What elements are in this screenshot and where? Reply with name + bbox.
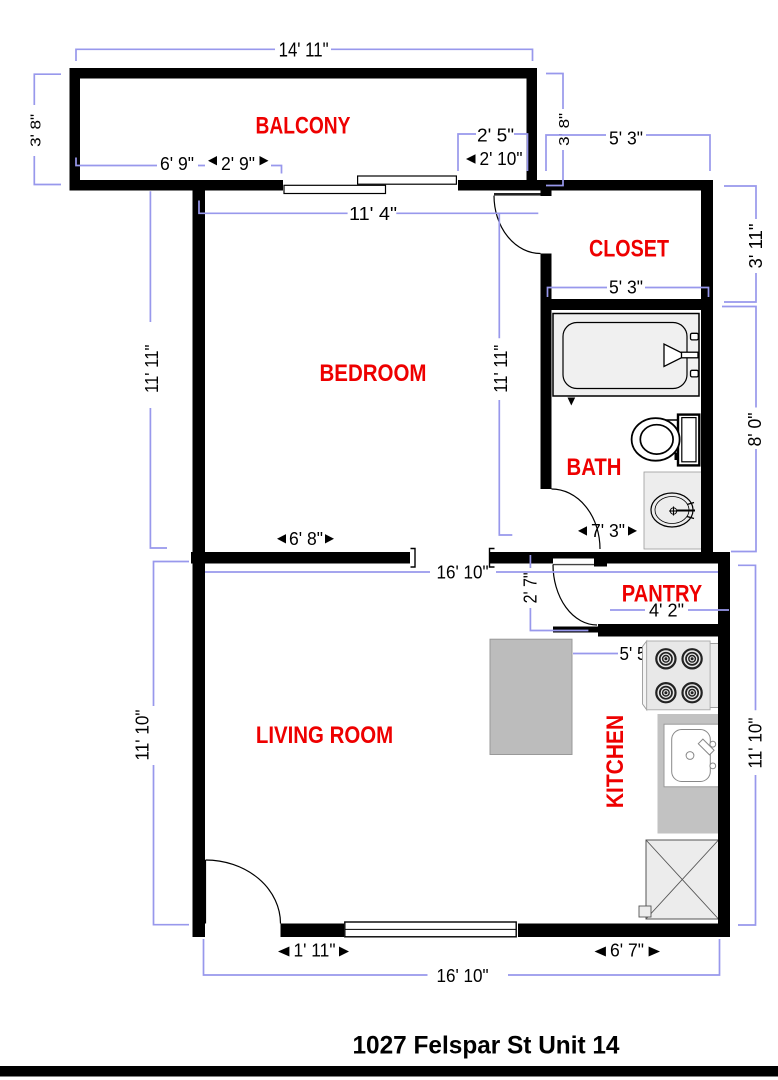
svg-text:6' 7": 6' 7" <box>610 941 644 961</box>
svg-text:11' 11": 11' 11" <box>142 345 162 394</box>
svg-text:11' 4": 11' 4" <box>349 204 397 224</box>
svg-text:3' 11": 3' 11" <box>746 224 766 269</box>
svg-text:11' 10": 11' 10" <box>132 710 152 761</box>
svg-text:6' 9": 6' 9" <box>160 154 194 174</box>
svg-text:5' 3": 5' 3" <box>609 278 643 298</box>
svg-text:3' 8": 3' 8" <box>27 114 44 147</box>
svg-text:3' 8": 3' 8" <box>556 113 573 146</box>
svg-text:BALCONY: BALCONY <box>256 113 351 140</box>
svg-text:11' 11": 11' 11" <box>491 345 511 393</box>
svg-text:BEDROOM: BEDROOM <box>320 360 427 387</box>
svg-text:5' 3": 5' 3" <box>609 129 643 149</box>
svg-text:16' 10": 16' 10" <box>437 563 489 583</box>
svg-text:2' 7": 2' 7" <box>520 572 540 603</box>
svg-text:2' 10": 2' 10" <box>480 149 523 169</box>
svg-text:CLOSET: CLOSET <box>589 236 669 263</box>
svg-text:14' 11": 14' 11" <box>279 40 329 62</box>
svg-text:KITCHEN: KITCHEN <box>602 715 629 808</box>
svg-text:7' 3": 7' 3" <box>591 521 625 541</box>
svg-text:BATH: BATH <box>567 454 622 481</box>
svg-text:6' 8": 6' 8" <box>289 529 323 549</box>
svg-text:1027 Felspar St Unit 14: 1027 Felspar St Unit 14 <box>353 1032 620 1060</box>
svg-text:2' 9": 2' 9" <box>221 154 255 174</box>
svg-text:8' 0": 8' 0" <box>745 413 765 447</box>
svg-text:11' 10": 11' 10" <box>746 718 766 769</box>
svg-text:16' 10": 16' 10" <box>437 966 489 986</box>
svg-text:1' 11": 1' 11" <box>294 941 336 961</box>
svg-text:LIVING ROOM: LIVING ROOM <box>256 722 393 749</box>
svg-text:PANTRY: PANTRY <box>622 580 702 607</box>
svg-text:2' 5": 2' 5" <box>477 126 514 146</box>
